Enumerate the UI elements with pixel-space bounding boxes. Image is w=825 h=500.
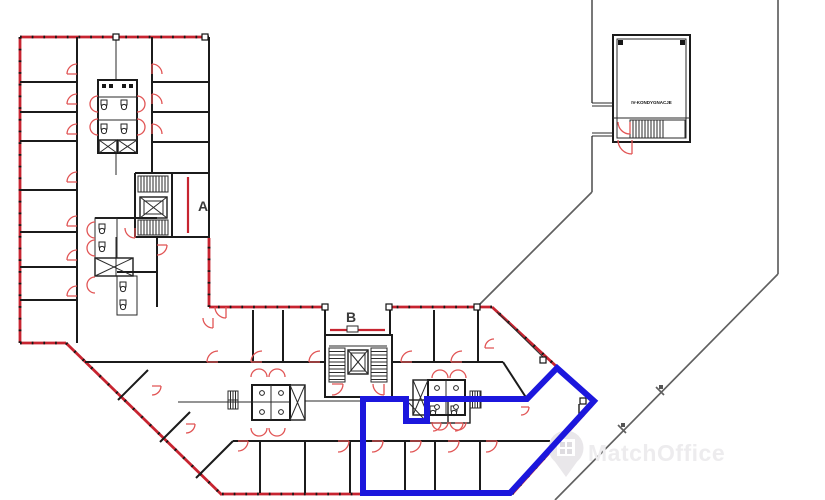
door-swing	[67, 94, 77, 104]
corner-marker	[540, 357, 546, 363]
corner-marker	[113, 34, 119, 40]
toilet	[121, 128, 126, 133]
door-swing	[251, 428, 267, 436]
door-swing	[207, 351, 218, 362]
toilet	[99, 246, 104, 251]
toilet	[121, 104, 126, 109]
exterior-wall	[66, 343, 222, 495]
toilet	[99, 228, 104, 233]
door-swing	[238, 441, 248, 451]
corner-marker	[386, 304, 392, 310]
door-swing	[251, 369, 267, 377]
door-swing	[410, 441, 421, 452]
door-swing	[67, 250, 77, 260]
room-divider	[196, 441, 233, 478]
door-swing	[215, 307, 226, 318]
annex-landing	[663, 120, 685, 138]
door-swing	[152, 124, 162, 134]
wall-inner-face	[497, 312, 543, 357]
section-label-a: A	[198, 198, 208, 214]
watermark-pin-grid	[560, 449, 565, 454]
corner-marker	[322, 304, 328, 310]
door-swing	[269, 369, 285, 377]
chair	[454, 405, 459, 410]
corner-marker	[580, 398, 586, 404]
wc-block	[95, 218, 117, 258]
toilet	[120, 304, 125, 309]
toilet	[101, 128, 106, 133]
annex-column	[618, 40, 623, 45]
door-swing	[67, 64, 77, 74]
door-swing	[451, 351, 462, 362]
urinal	[129, 84, 133, 88]
door-swing	[90, 96, 98, 112]
urinal	[102, 84, 106, 88]
door-swing	[87, 277, 95, 293]
door-swing	[401, 351, 412, 362]
door-swing	[67, 172, 77, 182]
door-swing	[618, 122, 630, 134]
door-swing	[157, 245, 167, 255]
door-swing	[448, 441, 459, 452]
chair	[279, 391, 284, 396]
room-divider	[160, 412, 190, 442]
toilet	[101, 104, 106, 109]
room-divider	[118, 370, 148, 400]
chair	[435, 405, 440, 410]
chair	[260, 410, 265, 415]
chair	[454, 386, 459, 391]
annex-stair	[630, 120, 663, 138]
section-label-b: B	[346, 309, 356, 325]
door-swing	[152, 94, 162, 104]
corner-marker	[202, 34, 208, 40]
door-swing	[137, 96, 145, 112]
door-swing	[67, 286, 77, 296]
watermark-pin-grid	[567, 442, 572, 447]
door-swing	[372, 441, 383, 452]
door-swing	[450, 370, 466, 378]
selected-unit-outline	[363, 368, 594, 493]
boundary-tick	[621, 423, 625, 427]
door-swing	[332, 384, 343, 395]
toilet	[120, 286, 125, 291]
corner-marker	[474, 304, 480, 310]
boundary-tick	[659, 385, 663, 389]
door-swing	[87, 222, 95, 238]
door-swing	[152, 386, 161, 395]
door-swing	[432, 370, 448, 378]
door-swing	[485, 339, 494, 348]
door-swing	[137, 119, 145, 135]
floorplan-canvas: A B IV-KONDYGNACJE MatchOffice	[0, 0, 825, 500]
door-swing	[269, 428, 285, 436]
watermark-text: MatchOffice	[588, 440, 725, 467]
annex-label: IV-KONDYGNACJE	[613, 100, 690, 105]
door-swing	[203, 318, 213, 328]
chair	[279, 410, 284, 415]
door-swing	[486, 441, 497, 452]
door-swing	[373, 384, 384, 395]
door-swing	[67, 216, 77, 226]
partition	[503, 362, 527, 399]
door-swing	[125, 228, 135, 238]
annex-column	[680, 40, 685, 45]
door-swing	[87, 240, 95, 256]
door-swing	[186, 424, 195, 433]
site-boundary	[477, 192, 592, 307]
door-swing	[338, 441, 349, 452]
watermark-pin-grid	[567, 449, 572, 454]
chair	[435, 386, 440, 391]
watermark-pin-tail	[553, 459, 579, 477]
watermark-pin-grid	[560, 442, 565, 447]
door-swing	[152, 64, 162, 74]
urinal	[109, 84, 113, 88]
chair	[260, 391, 265, 396]
door-swing	[309, 351, 320, 362]
door-swing	[90, 119, 98, 135]
door-swing	[67, 124, 77, 134]
floorplan-svg	[0, 0, 825, 500]
wc-pod-door	[409, 403, 424, 419]
door-leaf	[347, 326, 358, 332]
door-swing	[521, 407, 529, 415]
urinal	[122, 84, 126, 88]
